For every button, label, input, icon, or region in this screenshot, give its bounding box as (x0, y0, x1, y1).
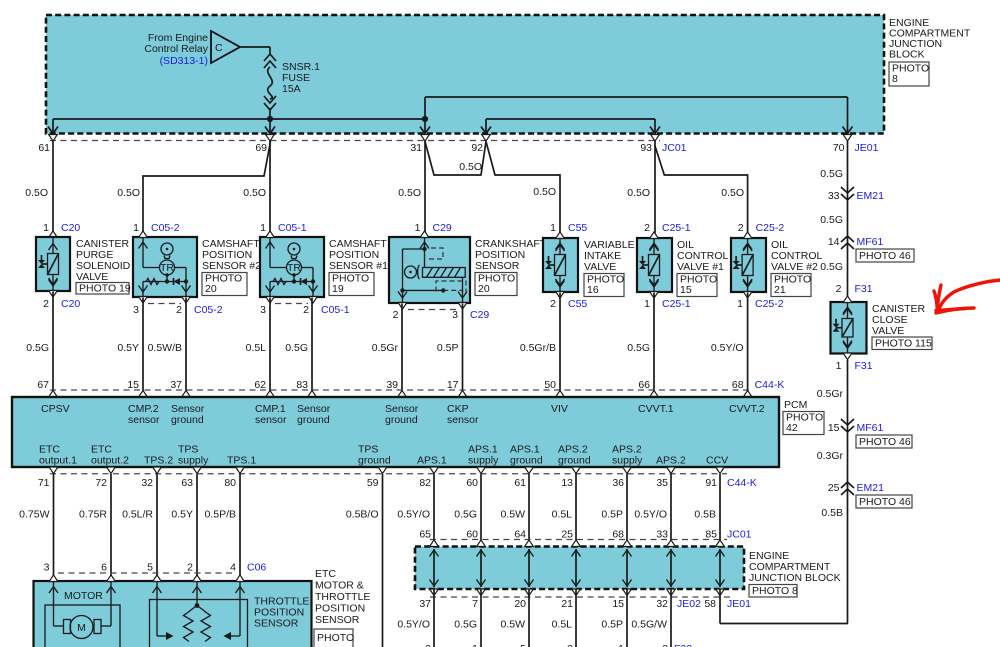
svg-text:C55: C55 (568, 222, 587, 234)
svg-text:0.5B/O: 0.5B/O (346, 509, 379, 521)
svg-text:TR: TR (160, 262, 174, 274)
svg-text:MOTOR: MOTOR (64, 590, 103, 602)
svg-text:THROTTLE: THROTTLE (315, 591, 370, 603)
svg-text:2: 2 (550, 298, 556, 310)
svg-text:3: 3 (452, 309, 458, 321)
svg-text:67: 67 (37, 379, 49, 391)
svg-text:15: 15 (828, 422, 840, 434)
svg-text:68: 68 (612, 529, 624, 541)
svg-text:M: M (77, 622, 86, 634)
svg-text:35: 35 (656, 477, 668, 489)
svg-text:0.5O: 0.5O (398, 187, 421, 199)
svg-text:ground: ground (171, 414, 204, 426)
svg-text:0.5L: 0.5L (552, 619, 573, 631)
svg-text:0.5O: 0.5O (459, 161, 482, 173)
svg-text:JUNCTION BLOCK: JUNCTION BLOCK (749, 572, 841, 584)
svg-text:20: 20 (514, 598, 526, 610)
svg-text:60: 60 (466, 529, 478, 541)
svg-text:1: 1 (836, 360, 842, 372)
svg-text:1: 1 (133, 222, 139, 234)
svg-text:0.5G: 0.5G (454, 619, 477, 631)
svg-text:sensor: sensor (255, 414, 287, 426)
svg-text:0.5G: 0.5G (820, 168, 843, 180)
svg-text:93: 93 (640, 142, 652, 154)
svg-text:output.1: output.1 (39, 455, 77, 467)
svg-text:0.3Gr: 0.3Gr (817, 450, 844, 462)
svg-text:0.5O: 0.5O (243, 187, 266, 199)
svg-text:JC01: JC01 (662, 142, 687, 154)
svg-text:F31: F31 (855, 283, 873, 295)
svg-text:17: 17 (447, 379, 459, 391)
svg-text:4: 4 (230, 562, 236, 574)
svg-text:91: 91 (705, 477, 717, 489)
svg-text:0.5G: 0.5G (627, 342, 650, 354)
svg-text:EM21: EM21 (857, 482, 885, 494)
svg-text:0.75R: 0.75R (79, 509, 107, 521)
svg-text:C25-1: C25-1 (662, 222, 691, 234)
svg-text:SENSOR: SENSOR (315, 614, 360, 626)
svg-text:TR: TR (287, 262, 301, 274)
svg-text:0.5W/B: 0.5W/B (148, 342, 182, 354)
svg-text:5: 5 (520, 643, 526, 647)
svg-text:F32: F32 (674, 643, 692, 647)
svg-text:C: C (215, 42, 223, 54)
svg-text:80: 80 (224, 477, 236, 489)
svg-text:21: 21 (561, 598, 573, 610)
svg-text:2: 2 (644, 222, 650, 234)
svg-text:8: 8 (892, 73, 898, 85)
svg-text:15: 15 (680, 284, 692, 296)
svg-text:2: 2 (836, 283, 842, 295)
svg-text:58: 58 (704, 598, 716, 610)
svg-text:36: 36 (612, 477, 624, 489)
svg-text:C05-2: C05-2 (194, 304, 223, 316)
svg-text:2: 2 (187, 562, 193, 574)
svg-text:20: 20 (205, 283, 217, 295)
svg-text:32: 32 (656, 598, 668, 610)
svg-text:VALVE: VALVE (76, 271, 108, 283)
svg-text:0.5O: 0.5O (25, 187, 48, 199)
svg-text:supply: supply (468, 455, 499, 467)
svg-text:CVVT.1: CVVT.1 (638, 403, 674, 415)
svg-text:0.5O: 0.5O (533, 186, 556, 198)
svg-text:0.5Y/O: 0.5Y/O (711, 342, 744, 354)
svg-text:POSITION: POSITION (315, 603, 365, 615)
svg-text:61: 61 (38, 142, 50, 154)
svg-text:C20: C20 (61, 222, 80, 234)
svg-text:71: 71 (38, 477, 50, 489)
svg-text:1: 1 (472, 643, 478, 647)
svg-text:3: 3 (133, 304, 139, 316)
svg-text:72: 72 (95, 477, 107, 489)
svg-text:32: 32 (141, 477, 153, 489)
svg-text:33: 33 (656, 529, 668, 541)
svg-text:66: 66 (638, 379, 650, 391)
svg-text:1: 1 (644, 298, 650, 310)
svg-text:C44-K: C44-K (755, 379, 785, 391)
svg-text:37: 37 (170, 379, 182, 391)
svg-text:ground: ground (385, 414, 418, 426)
svg-text:0.5L/R: 0.5L/R (122, 509, 153, 521)
svg-text:VALVE: VALVE (584, 261, 616, 273)
svg-text:BLOCK: BLOCK (889, 49, 925, 61)
svg-text:F31: F31 (855, 360, 873, 372)
svg-text:33: 33 (828, 190, 840, 202)
svg-text:VALVE #2: VALVE #2 (771, 261, 818, 273)
svg-text:2: 2 (738, 222, 744, 234)
svg-text:0.75W: 0.75W (19, 509, 49, 521)
svg-text:sensor: sensor (128, 414, 160, 426)
svg-text:0.5Y: 0.5Y (117, 342, 139, 354)
svg-text:3: 3 (425, 643, 431, 647)
svg-text:1: 1 (260, 222, 266, 234)
svg-text:60: 60 (466, 477, 478, 489)
svg-text:83: 83 (296, 379, 308, 391)
svg-text:15: 15 (612, 598, 624, 610)
svg-text:2: 2 (43, 298, 49, 310)
svg-text:2: 2 (393, 309, 399, 321)
svg-text:supply: supply (178, 455, 209, 467)
svg-text:ground: ground (297, 414, 330, 426)
svg-text:APS.2: APS.2 (656, 455, 686, 467)
svg-text:ETC: ETC (315, 568, 336, 580)
svg-text:82: 82 (419, 477, 431, 489)
svg-text:0.5G: 0.5G (820, 214, 843, 226)
svg-text:65: 65 (419, 529, 431, 541)
svg-text:0.5G: 0.5G (285, 342, 308, 354)
svg-text:63: 63 (181, 477, 193, 489)
svg-text:0.5L: 0.5L (246, 342, 267, 354)
svg-text:CVVT.2: CVVT.2 (729, 403, 765, 415)
svg-text:0.5O: 0.5O (627, 187, 650, 199)
svg-text:JE01: JE01 (855, 142, 879, 154)
svg-text:70: 70 (833, 142, 845, 154)
svg-text:15: 15 (127, 379, 139, 391)
svg-text:PCM: PCM (784, 399, 807, 411)
svg-text:50: 50 (544, 379, 556, 391)
svg-text:PHOTO 46: PHOTO 46 (859, 250, 911, 262)
svg-text:0.5B: 0.5B (694, 509, 716, 521)
svg-text:APS.1: APS.1 (417, 455, 447, 467)
svg-text:1: 1 (618, 643, 624, 647)
svg-text:PHOTO 115: PHOTO 115 (875, 338, 932, 350)
svg-text:19: 19 (332, 283, 344, 295)
svg-text:0.5Y/O: 0.5Y/O (397, 509, 430, 521)
svg-text:62: 62 (254, 379, 266, 391)
svg-text:21: 21 (774, 284, 786, 296)
svg-text:0.5Gr/B: 0.5Gr/B (520, 342, 556, 354)
svg-text:13: 13 (561, 477, 573, 489)
svg-text:C20: C20 (61, 298, 80, 310)
svg-text:0.5W: 0.5W (500, 619, 525, 631)
svg-text:14: 14 (828, 236, 840, 248)
svg-text:C06: C06 (247, 562, 266, 574)
svg-text:MF61: MF61 (857, 236, 884, 248)
svg-text:MOTOR &: MOTOR & (315, 580, 364, 592)
svg-text:C25-2: C25-2 (755, 298, 784, 310)
svg-text:61: 61 (514, 477, 526, 489)
svg-text:0.5L: 0.5L (552, 509, 573, 521)
svg-text:39: 39 (386, 379, 398, 391)
svg-text:MF61: MF61 (857, 422, 884, 434)
svg-text:JE02: JE02 (677, 598, 701, 610)
svg-text:3: 3 (44, 562, 50, 574)
svg-text:0.5P: 0.5P (601, 619, 623, 631)
svg-text:0.5Gr: 0.5Gr (372, 342, 399, 354)
svg-text:42: 42 (786, 422, 798, 434)
svg-text:37: 37 (419, 598, 431, 610)
svg-text:1: 1 (415, 222, 421, 234)
svg-text:VALVE #1: VALVE #1 (677, 261, 724, 273)
svg-text:5: 5 (147, 562, 153, 574)
svg-text:TPS.2: TPS.2 (144, 455, 173, 467)
svg-text:25: 25 (828, 482, 840, 494)
svg-text:JC01: JC01 (727, 529, 752, 541)
svg-text:3: 3 (260, 304, 266, 316)
svg-text:69: 69 (255, 142, 267, 154)
svg-text:VIV: VIV (551, 403, 568, 415)
svg-text:ground: ground (510, 455, 543, 467)
svg-text:0.5O: 0.5O (721, 187, 744, 199)
svg-text:C05-2: C05-2 (151, 222, 180, 234)
svg-text:PHOTO 46: PHOTO 46 (859, 436, 911, 448)
svg-text:ground: ground (558, 455, 591, 467)
svg-text:SENSOR: SENSOR (475, 260, 520, 272)
svg-text:0.5Y: 0.5Y (171, 509, 193, 521)
svg-text:25: 25 (561, 529, 573, 541)
svg-text:0.5P: 0.5P (601, 509, 623, 521)
svg-text:2: 2 (176, 304, 182, 316)
svg-text:Control Relay: Control Relay (144, 43, 208, 55)
svg-text:0.5G/W: 0.5G/W (631, 619, 667, 631)
svg-text:SENSOR: SENSOR (254, 618, 299, 630)
svg-text:C44-K: C44-K (727, 477, 757, 489)
svg-text:0.5P/B: 0.5P/B (204, 509, 236, 521)
svg-text:SENSOR #1: SENSOR #1 (329, 260, 388, 272)
svg-text:3: 3 (567, 643, 573, 647)
svg-text:1: 1 (43, 222, 49, 234)
svg-text:PHOTO 19: PHOTO 19 (79, 283, 131, 295)
svg-text:0.5O: 0.5O (117, 187, 140, 199)
svg-text:sensor: sensor (447, 414, 479, 426)
svg-text:6: 6 (101, 562, 107, 574)
svg-text:supply: supply (612, 455, 643, 467)
svg-text:EM21: EM21 (857, 190, 885, 202)
svg-text:C05-1: C05-1 (278, 222, 307, 234)
svg-text:SENSOR #2: SENSOR #2 (202, 260, 261, 272)
svg-text:15A: 15A (282, 83, 301, 95)
svg-text:CCV: CCV (706, 455, 728, 467)
svg-text:VALVE: VALVE (872, 325, 904, 337)
svg-text:1: 1 (737, 298, 743, 310)
svg-text:PHOTO 46: PHOTO 46 (859, 496, 911, 508)
svg-text:0.5G: 0.5G (820, 261, 843, 273)
svg-text:31: 31 (410, 142, 422, 154)
svg-text:0.5G: 0.5G (26, 342, 49, 354)
svg-text:0.5B: 0.5B (821, 507, 843, 519)
svg-text:0.5Gr: 0.5Gr (817, 388, 844, 400)
svg-text:64: 64 (514, 529, 526, 541)
svg-text:16: 16 (587, 284, 599, 296)
svg-text:0.5Y/O: 0.5Y/O (634, 509, 667, 521)
svg-text:JE01: JE01 (727, 598, 751, 610)
svg-text:2: 2 (303, 304, 309, 316)
svg-text:PHOTO 8: PHOTO 8 (752, 585, 798, 597)
svg-text:C25-2: C25-2 (756, 222, 785, 234)
svg-text:C05-1: C05-1 (321, 304, 350, 316)
svg-text:ground: ground (358, 455, 391, 467)
svg-text:C25-1: C25-1 (662, 298, 691, 310)
svg-text:1: 1 (550, 222, 556, 234)
svg-text:0.5G: 0.5G (454, 509, 477, 521)
svg-text:0.5Y/O: 0.5Y/O (397, 619, 430, 631)
svg-text:59: 59 (367, 477, 379, 489)
svg-text:0.5W: 0.5W (500, 509, 525, 521)
svg-text:output.2: output.2 (91, 455, 129, 467)
svg-text:PHOTO: PHOTO (317, 632, 354, 644)
svg-text:20: 20 (478, 283, 490, 295)
svg-text:CPSV: CPSV (41, 403, 70, 415)
svg-text:(SD313-1): (SD313-1) (160, 55, 208, 67)
svg-text:7: 7 (472, 598, 478, 610)
svg-text:TPS.1: TPS.1 (227, 455, 256, 467)
svg-text:C55: C55 (568, 298, 587, 310)
svg-text:85: 85 (705, 529, 717, 541)
svg-text:0.5P: 0.5P (437, 342, 459, 354)
svg-text:C29: C29 (470, 309, 489, 321)
svg-text:3: 3 (662, 643, 668, 647)
svg-text:C29: C29 (433, 222, 452, 234)
svg-text:92: 92 (471, 142, 483, 154)
svg-text:68: 68 (732, 379, 744, 391)
